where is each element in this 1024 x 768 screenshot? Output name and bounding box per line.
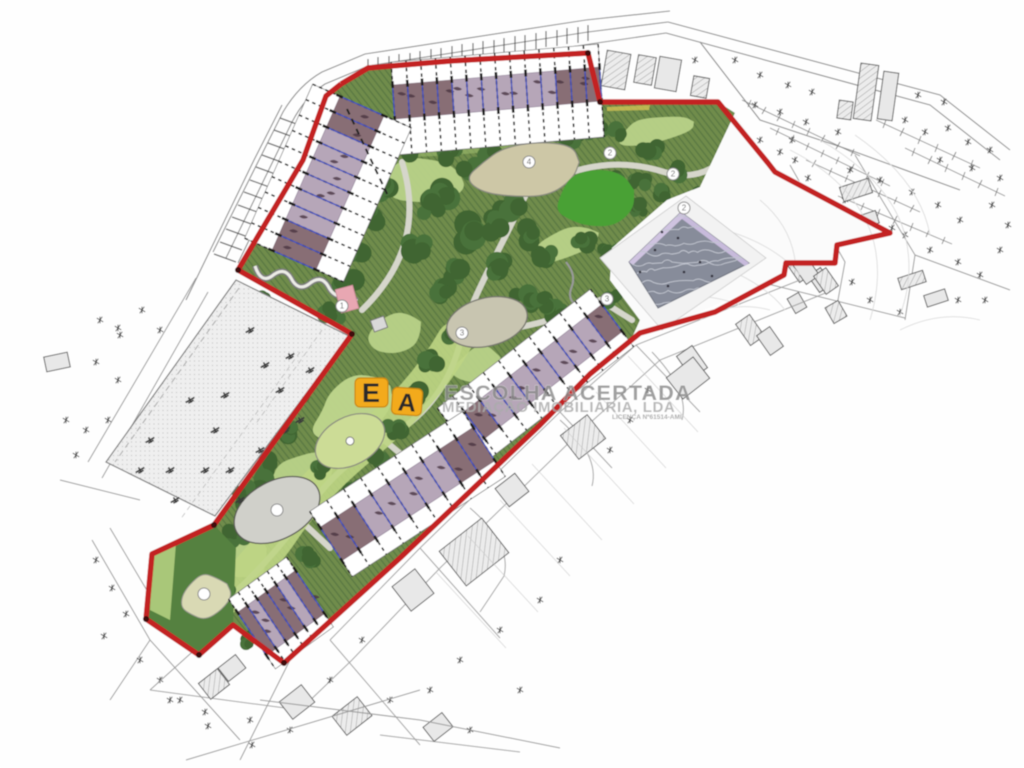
svg-text:2: 2	[671, 170, 676, 179]
svg-text:1: 1	[340, 302, 345, 311]
svg-text:LICENÇA Nº61514-AMI: LICENÇA Nº61514-AMI	[612, 414, 682, 421]
svg-text:3: 3	[605, 295, 610, 304]
svg-text:E: E	[362, 378, 380, 408]
svg-text:4: 4	[527, 158, 532, 167]
svg-text:2: 2	[682, 204, 687, 213]
svg-text:2: 2	[608, 149, 613, 158]
svg-text:3: 3	[460, 329, 465, 338]
svg-text:A: A	[397, 388, 417, 417]
